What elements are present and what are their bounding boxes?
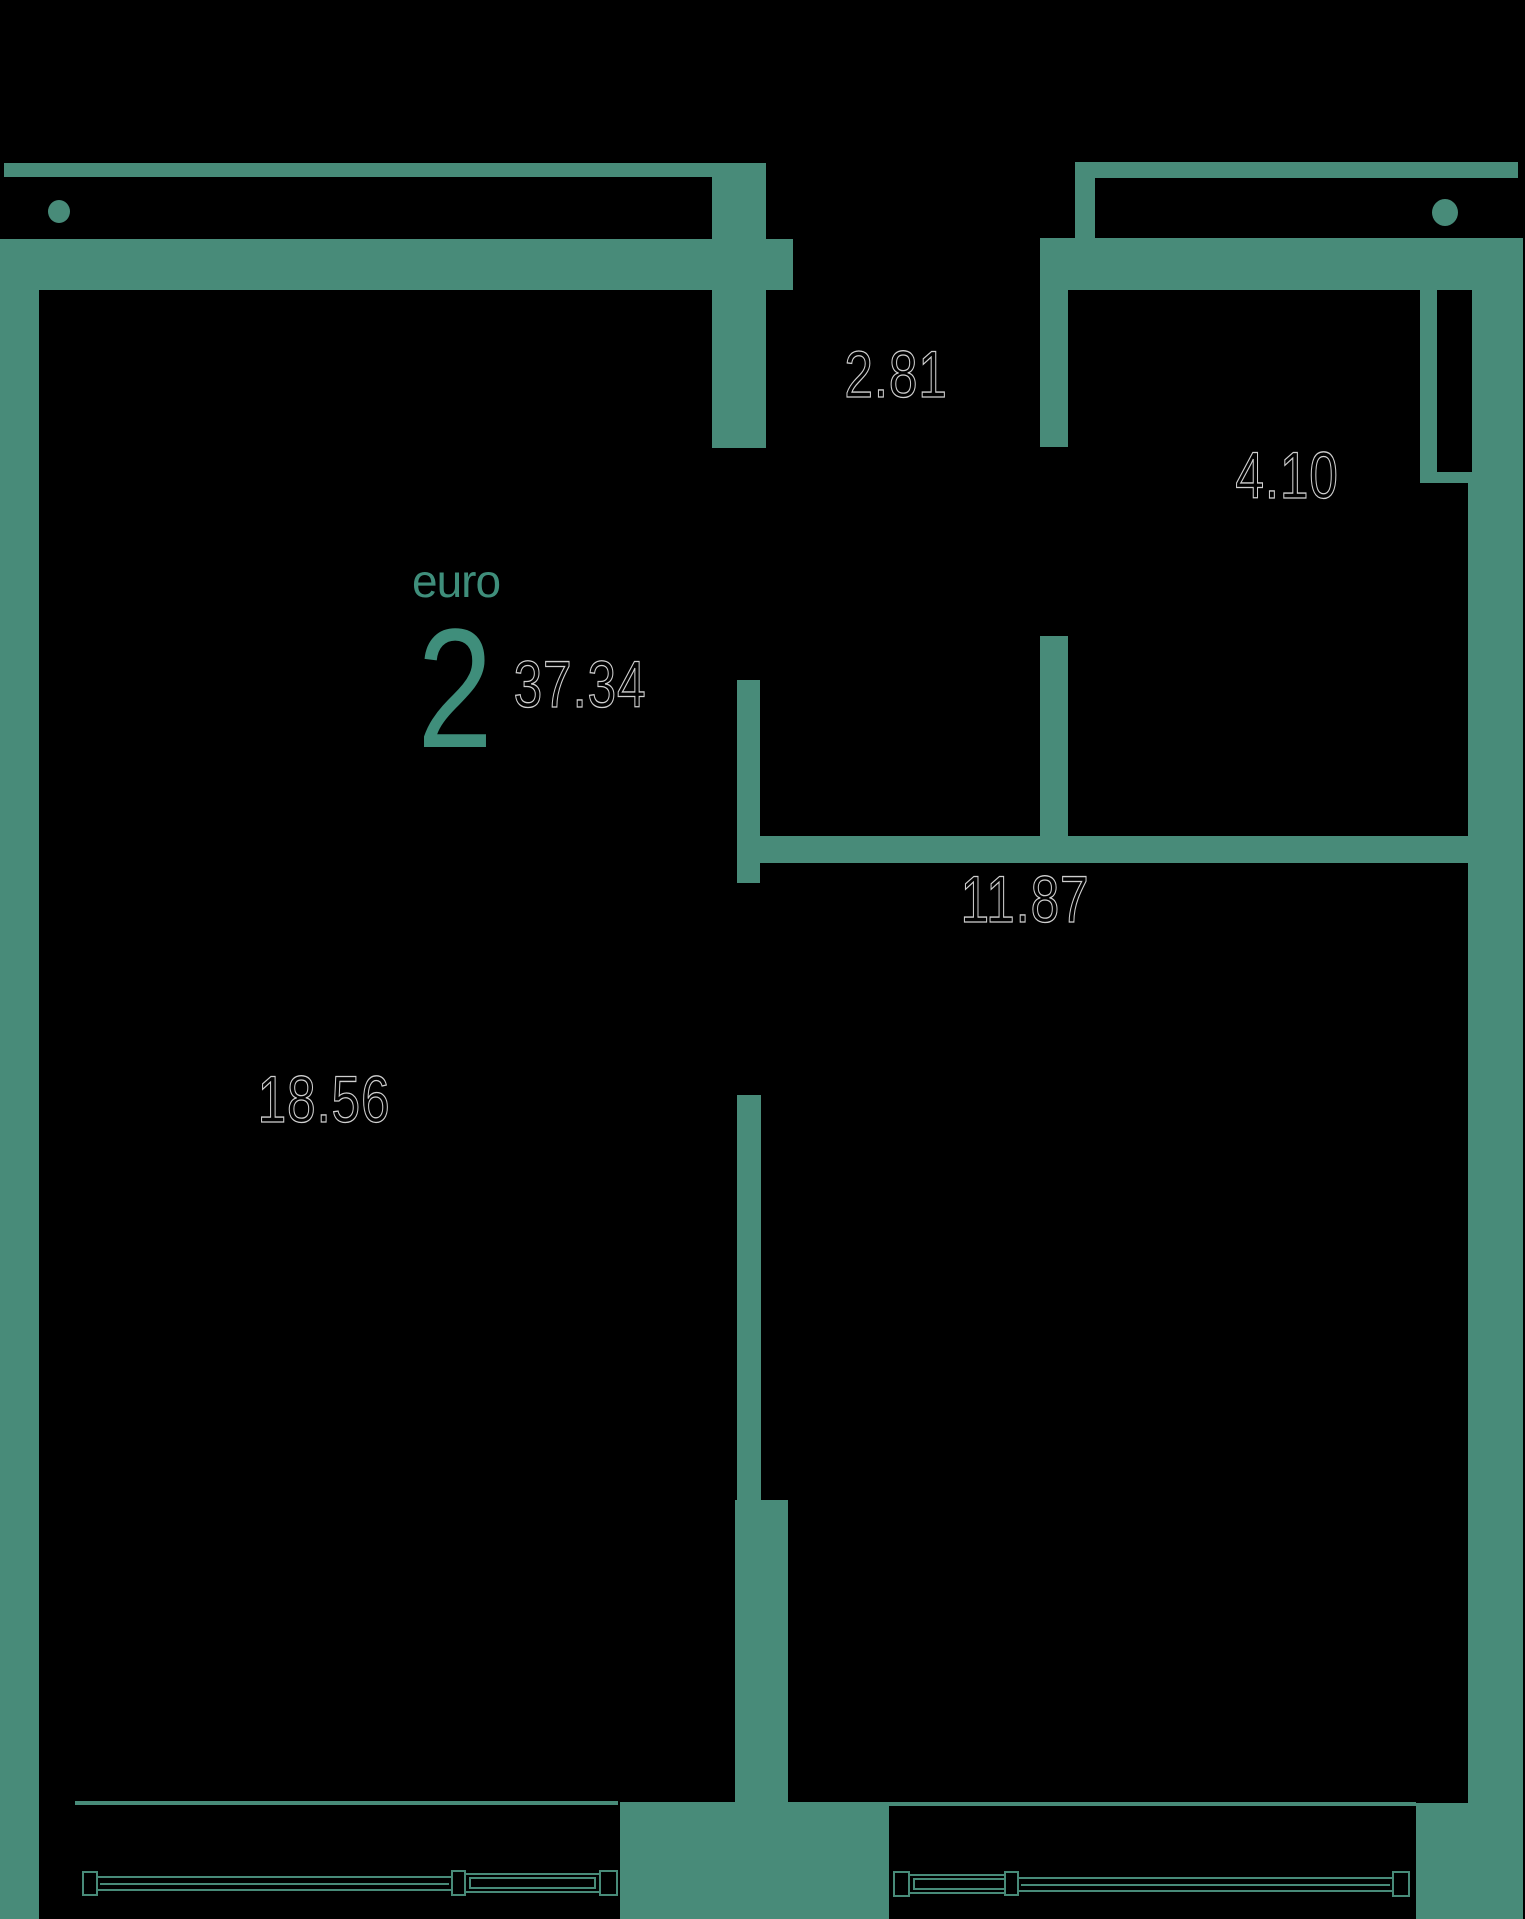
brand-number: 2 (417, 604, 493, 774)
window-sash-midline (100, 1883, 449, 1885)
area-label-room-right: 11.87 (961, 866, 1090, 932)
wall-right (1468, 483, 1523, 1803)
total-area-label: 37.34 (514, 651, 647, 717)
window-jamb (1392, 1871, 1410, 1897)
wall-bathroom-left-lower (1040, 636, 1068, 863)
window-pier-bottom (620, 1802, 889, 1919)
window-jamb (599, 1870, 618, 1896)
floor-plan: euro 2 37.34 2.81 4.10 11.87 18.56 (0, 0, 1525, 1919)
marker-dot-left (48, 200, 70, 223)
balcony-connector-top-right (1075, 162, 1095, 238)
wall-bathroom-left-upper (1040, 290, 1068, 447)
area-label-bathroom: 4.10 (1235, 442, 1338, 508)
window-sash-casement-inner (469, 1877, 596, 1889)
wall-partition-lower-thick (735, 1500, 788, 1802)
corner-block-bottom-right (1416, 1803, 1523, 1919)
balcony-line-top-right (1075, 162, 1518, 178)
wall-partition-upper (737, 680, 760, 883)
window-sill-right (889, 1802, 1416, 1806)
wall-left (0, 239, 39, 1919)
duct-niche (1437, 290, 1472, 472)
wall-partition-horizontal (760, 836, 1468, 863)
marker-dot-right (1432, 199, 1458, 226)
balcony-line-top-left (4, 163, 718, 177)
window-sill-left (75, 1801, 618, 1805)
window-sash-midline (1021, 1884, 1390, 1886)
area-label-hall: 2.81 (844, 341, 947, 407)
wall-partition-lower-thin (737, 1095, 761, 1500)
wall-top-left (0, 239, 793, 290)
wall-hallway-left (712, 163, 766, 448)
area-label-room-left: 18.56 (258, 1066, 391, 1132)
window-sash-casement-inner (913, 1878, 1006, 1890)
